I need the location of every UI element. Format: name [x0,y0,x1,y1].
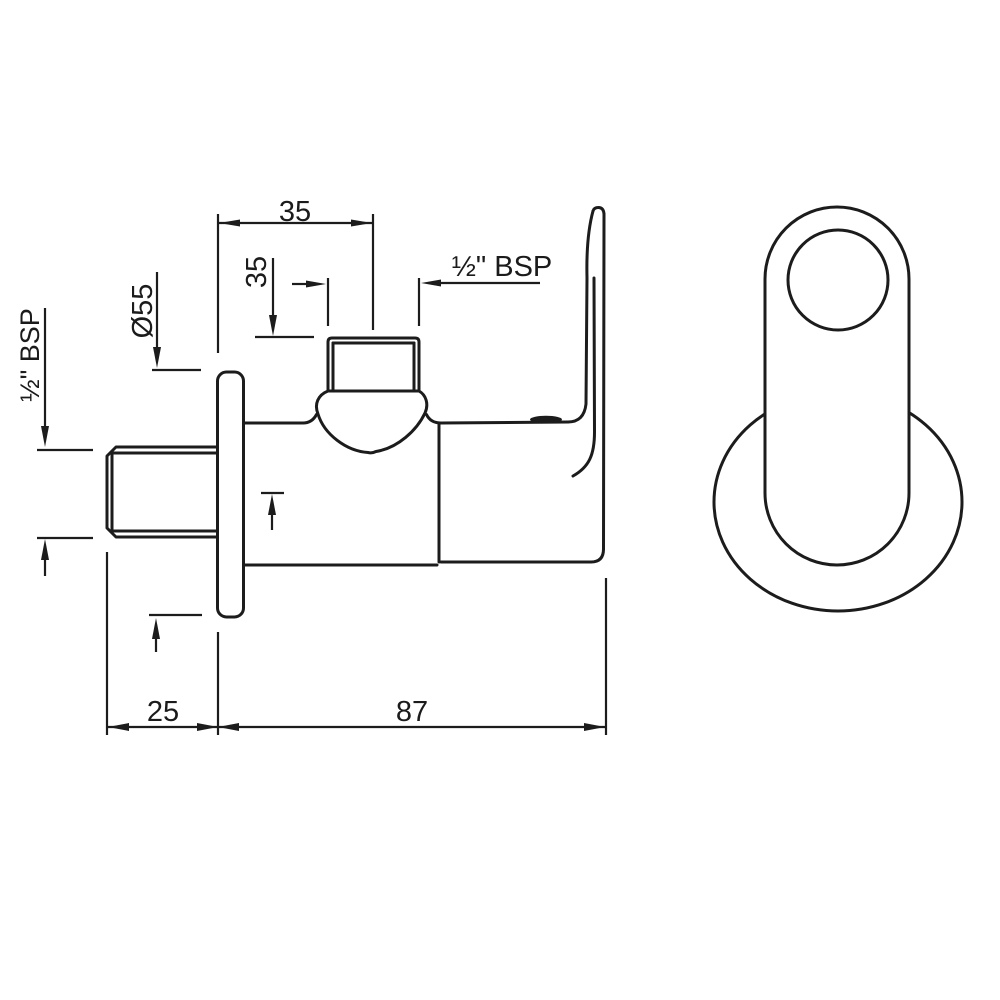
inlet-pipe-outline [107,447,217,537]
wall-flange-side [218,372,244,617]
handle-top-cap [593,208,604,215]
body-top-left-edge [244,415,317,424]
handle-inner-edge-hook [573,278,595,476]
arrowhead-right [306,281,326,288]
arrowhead-right [351,220,372,227]
dim-bottom-chain: 25 87 [107,552,606,735]
arrowhead-left [219,220,240,227]
arrowhead-up [41,539,49,560]
front-view [714,207,962,611]
angle-valve-drawing: 35 35 Ø55 [0,0,1000,1000]
dim-label-outlet-thread: ½" BSP [452,251,553,283]
body-bottom-right-edge [441,549,604,562]
dim-outlet-thread: ½" BSP [292,251,552,326]
dim-flange-diameter: Ø55 [127,272,202,652]
arrowhead-up [152,618,160,639]
dim-outlet-height-offset: 35 [241,256,314,530]
dim-label-87: 87 [396,696,428,728]
inlet-pipe [107,447,217,537]
dim-label-25: 25 [147,696,179,728]
arrowhead-down [269,315,277,336]
arrowhead-left [421,280,441,287]
arrowhead-25-left [108,723,129,731]
arrowhead-87-right [584,723,605,731]
outlet-outline [328,338,419,391]
arrowhead-up [268,494,276,515]
dim-label-top-35: 35 [279,196,311,228]
arrowhead-87-left [218,723,239,731]
arrowhead-25-right [197,723,218,731]
arrowhead-down [41,426,49,447]
handle-back-edge [604,214,605,549]
technical-drawing-page: 35 35 Ø55 [0,0,1000,1000]
dim-label-vertical-35: 35 [241,256,273,288]
handle-base-shadow [530,416,562,424]
outlet-spout [328,338,419,391]
side-view: 35 35 Ø55 [15,196,606,735]
arrowhead-down [153,347,161,368]
dim-label-flange-diameter: Ø55 [127,284,159,339]
dim-inlet-thread: ½" BSP [15,308,93,576]
bonnet-dome [316,391,426,453]
handle-front-edge [568,211,593,422]
handle-lever-front [765,207,909,565]
dim-label-inlet-thread: ½" BSP [15,308,45,402]
